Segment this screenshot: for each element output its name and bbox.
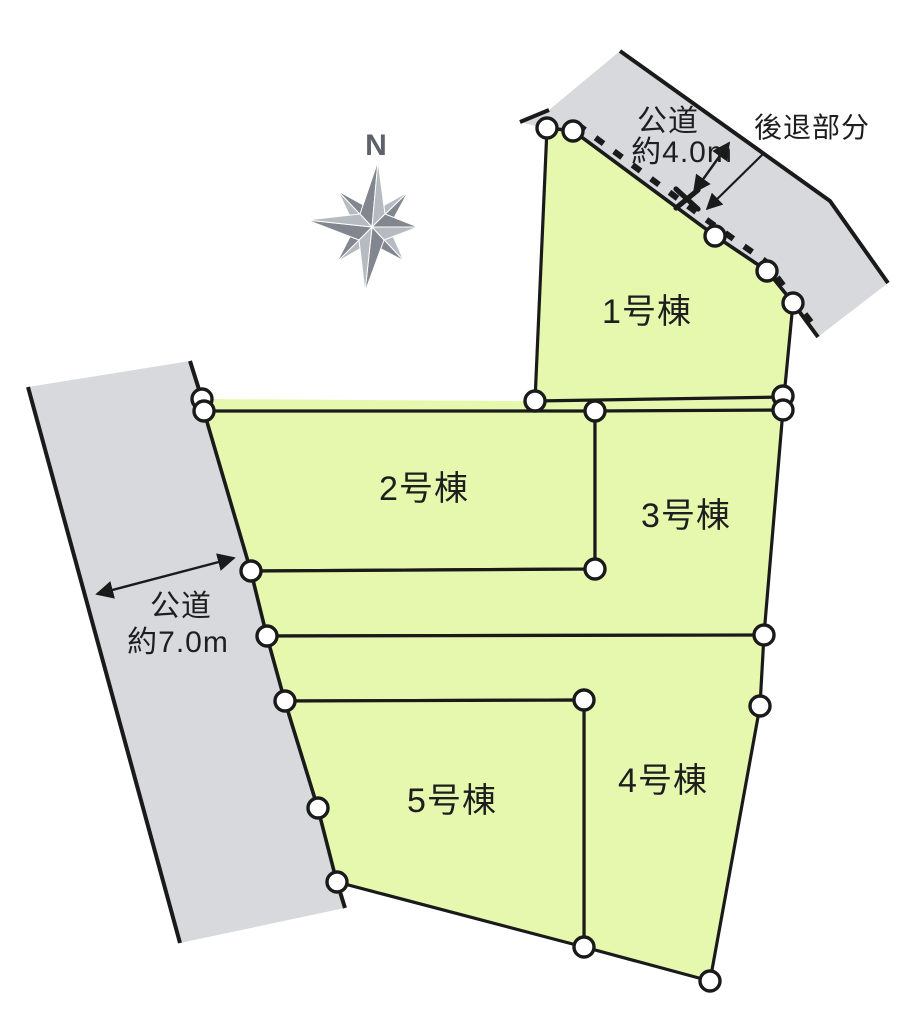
vertex-marker <box>705 226 725 246</box>
vertex-marker <box>563 121 583 141</box>
vertex-marker <box>194 401 214 421</box>
compass-rose: N <box>307 129 418 292</box>
vertex-marker <box>574 937 594 957</box>
lot-4-label: 4号棟 <box>618 762 708 800</box>
vertex-marker <box>275 691 295 711</box>
lot-2-label: 2号棟 <box>379 470 469 508</box>
site-plan-svg: N 公道 約4.0m 後退部分 公道 約7.0m 1号棟 2号棟 3号棟 4号棟… <box>0 0 917 1024</box>
vertex-marker <box>308 798 328 818</box>
road-left-width-label: 約7.0m <box>127 626 229 659</box>
vertex-marker <box>757 261 777 281</box>
lot-5-label: 5号棟 <box>407 782 497 820</box>
vertex-marker <box>773 400 793 420</box>
compass-star-icon <box>307 161 418 292</box>
road-top-width-label: 約4.0m <box>631 136 733 169</box>
lot-3-label: 3号棟 <box>641 497 731 535</box>
compass-north-label: N <box>365 129 387 162</box>
vertex-marker <box>783 293 803 313</box>
vertex-marker <box>537 118 557 138</box>
road-top-name-label: 公道 <box>637 105 699 138</box>
vertex-marker <box>257 626 277 646</box>
vertex-marker <box>585 559 605 579</box>
vertex-marker <box>574 690 594 710</box>
vertex-marker <box>327 872 347 892</box>
road-left-name-label: 公道 <box>150 590 212 623</box>
vertex-marker <box>750 696 770 716</box>
setback-label: 後退部分 <box>754 112 870 143</box>
vertex-marker <box>700 971 720 991</box>
vertex-marker <box>241 561 261 581</box>
vertex-marker <box>525 391 545 411</box>
vertex-marker <box>585 401 605 421</box>
lot-1-label: 1号棟 <box>602 293 692 331</box>
vertex-marker <box>754 625 774 645</box>
site-plan: N 公道 約4.0m 後退部分 公道 約7.0m 1号棟 2号棟 3号棟 4号棟… <box>0 0 917 1024</box>
